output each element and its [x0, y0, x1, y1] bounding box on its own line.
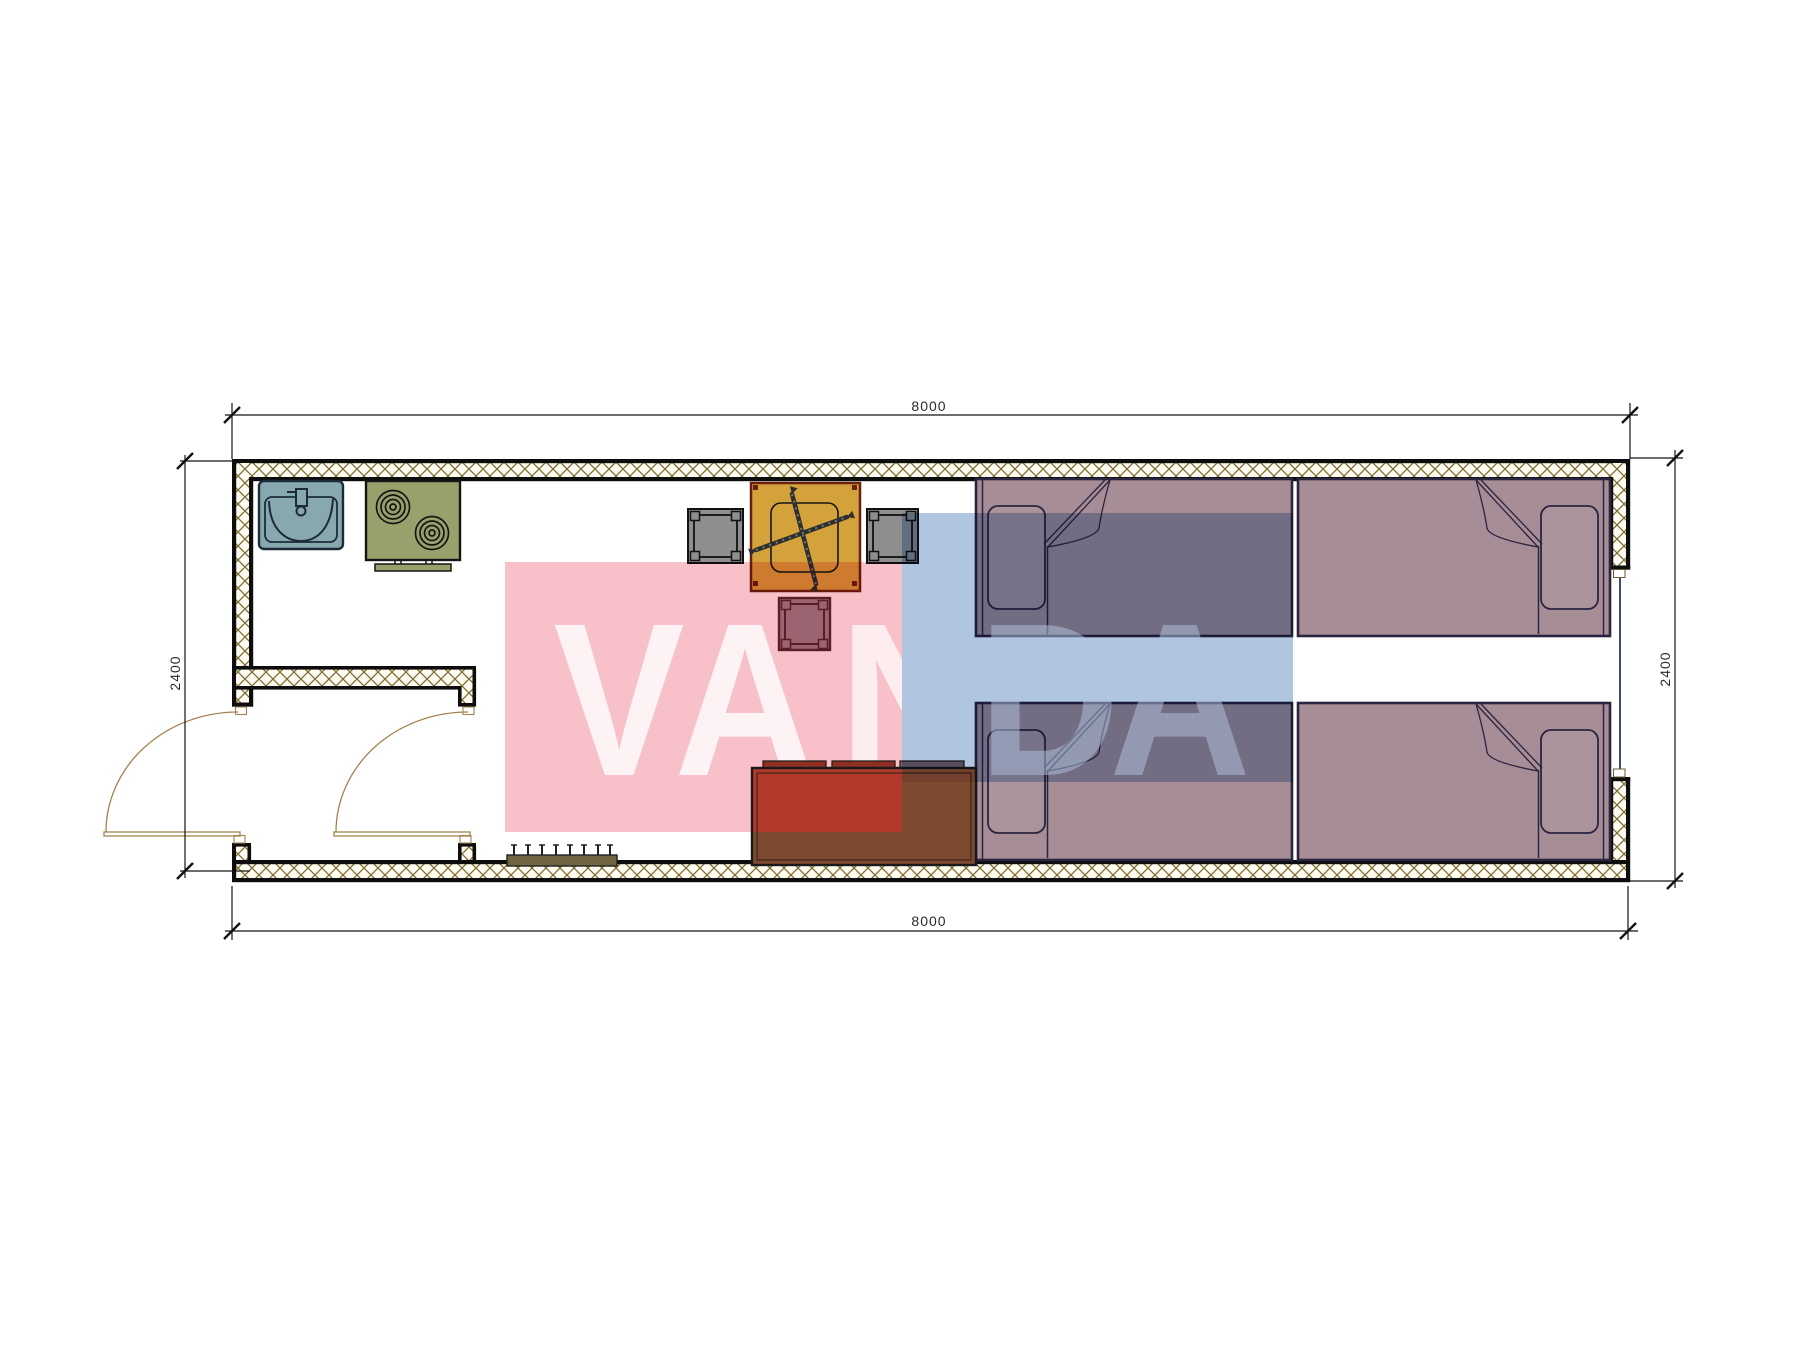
svg-text:2400: 2400 [167, 655, 183, 690]
svg-text:8000: 8000 [911, 913, 946, 929]
svg-text:V: V [554, 577, 685, 821]
svg-text:8000: 8000 [911, 398, 946, 414]
svg-text:2400: 2400 [1657, 651, 1673, 686]
